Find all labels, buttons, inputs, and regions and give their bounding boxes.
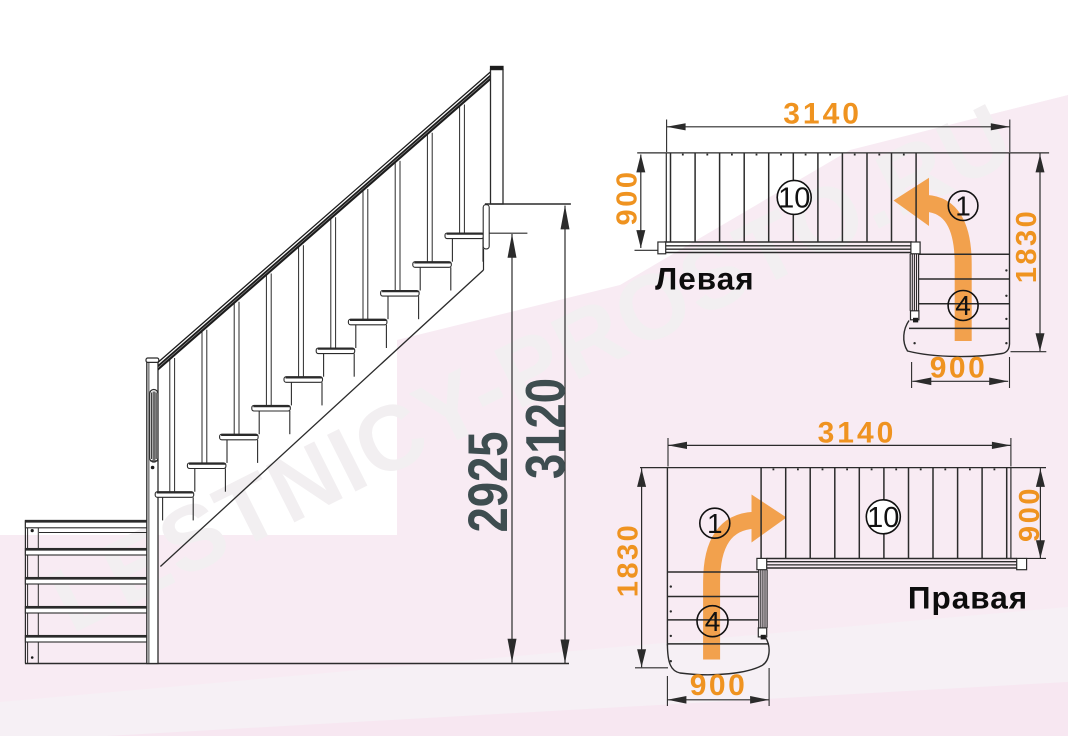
svg-text:3140: 3140 [783,98,862,131]
svg-text:Левая: Левая [655,261,754,297]
svg-text:900: 900 [1014,486,1046,542]
svg-text:900: 900 [690,669,748,702]
svg-text:1830: 1830 [613,523,645,598]
svg-text:10: 10 [867,502,899,534]
svg-text:900: 900 [611,170,643,226]
svg-text:2925: 2925 [456,432,519,533]
svg-text:Правая: Правая [908,580,1028,616]
svg-text:10: 10 [778,183,810,215]
svg-text:4: 4 [955,290,971,321]
svg-text:1: 1 [955,190,971,221]
svg-text:1830: 1830 [1011,209,1043,284]
svg-text:1: 1 [707,508,723,539]
svg-text:900: 900 [930,352,988,385]
svg-text:4: 4 [705,606,721,637]
svg-text:3120: 3120 [514,378,577,479]
svg-text:3140: 3140 [818,417,897,450]
